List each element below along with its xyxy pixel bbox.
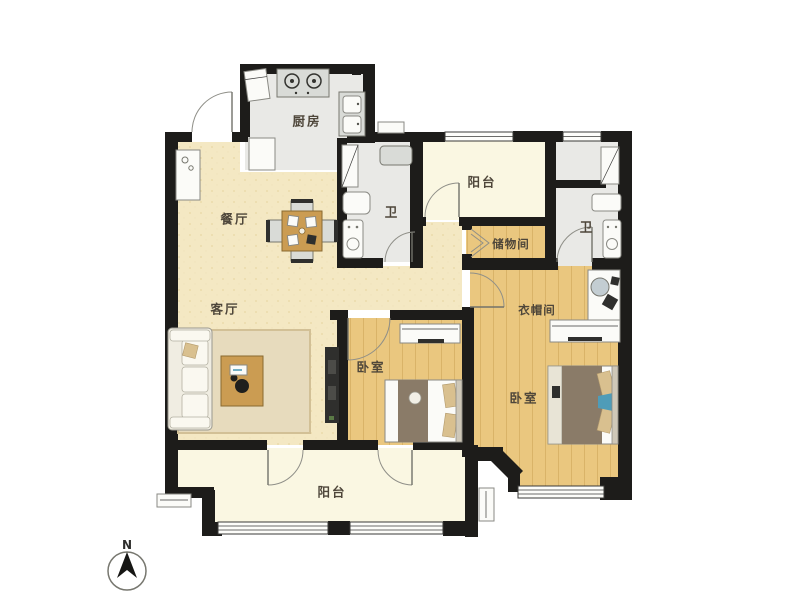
kitchen-cabinet: [249, 138, 275, 170]
bathtub-icon: [343, 192, 370, 214]
room-label-balcony-top: 阳台: [467, 172, 496, 191]
bed-icon: [548, 366, 618, 444]
stove-icon: [277, 69, 329, 97]
tv-console-icon: [325, 347, 339, 423]
room-label-bedroom-1: 卧室: [356, 357, 385, 376]
room-label-dining: 餐厅: [220, 209, 249, 228]
entry-door: [192, 92, 232, 132]
kitchen-hood: [352, 67, 361, 75]
window: [518, 486, 604, 498]
shower-icon: [342, 145, 358, 187]
floor-plan: 厨房 餐厅 客厅 阳台 卫 储物间 卫 衣帽间 卧室 卧室 阳台 N: [0, 0, 800, 600]
room-label-living: 客厅: [210, 299, 239, 318]
room-label-balcony-bottom: 阳台: [317, 482, 346, 501]
room-label-kitchen: 厨房: [292, 111, 321, 130]
duct-vent: [378, 122, 404, 133]
desk-icon: [588, 270, 620, 322]
window: [350, 522, 443, 534]
closet-shelf-icon: [400, 324, 460, 343]
washbasin-icon: [592, 194, 621, 211]
room-label-bedroom-2: 卧室: [509, 388, 538, 407]
compass-icon: [108, 552, 146, 590]
window: [218, 522, 328, 534]
ac-unit-icon: [479, 488, 494, 521]
sofa-icon: [168, 328, 212, 430]
room-label-bath-2: 卫: [580, 217, 593, 236]
floor-plan-drawing: [0, 0, 800, 600]
window: [563, 132, 601, 141]
coffee-table-icon: [221, 356, 263, 406]
toilet-icon: [603, 220, 621, 258]
bed-icon: [385, 380, 462, 442]
fridge-icon: [244, 69, 270, 102]
room-label-storage: 储物间: [492, 236, 530, 252]
room-label-cloakroom: 衣帽间: [518, 302, 556, 318]
window: [445, 132, 513, 141]
compass-north-label: N: [122, 538, 132, 552]
toilet-icon: [343, 220, 363, 258]
shower-icon: [601, 147, 619, 184]
kitchen-sink-icon: [339, 92, 365, 136]
wardrobe-icon: [550, 320, 620, 342]
washbasin-icon: [380, 146, 412, 165]
room-label-bath-1: 卫: [385, 202, 398, 221]
shoe-cabinet-icon: [176, 150, 200, 200]
ac-unit-icon: [157, 494, 191, 507]
